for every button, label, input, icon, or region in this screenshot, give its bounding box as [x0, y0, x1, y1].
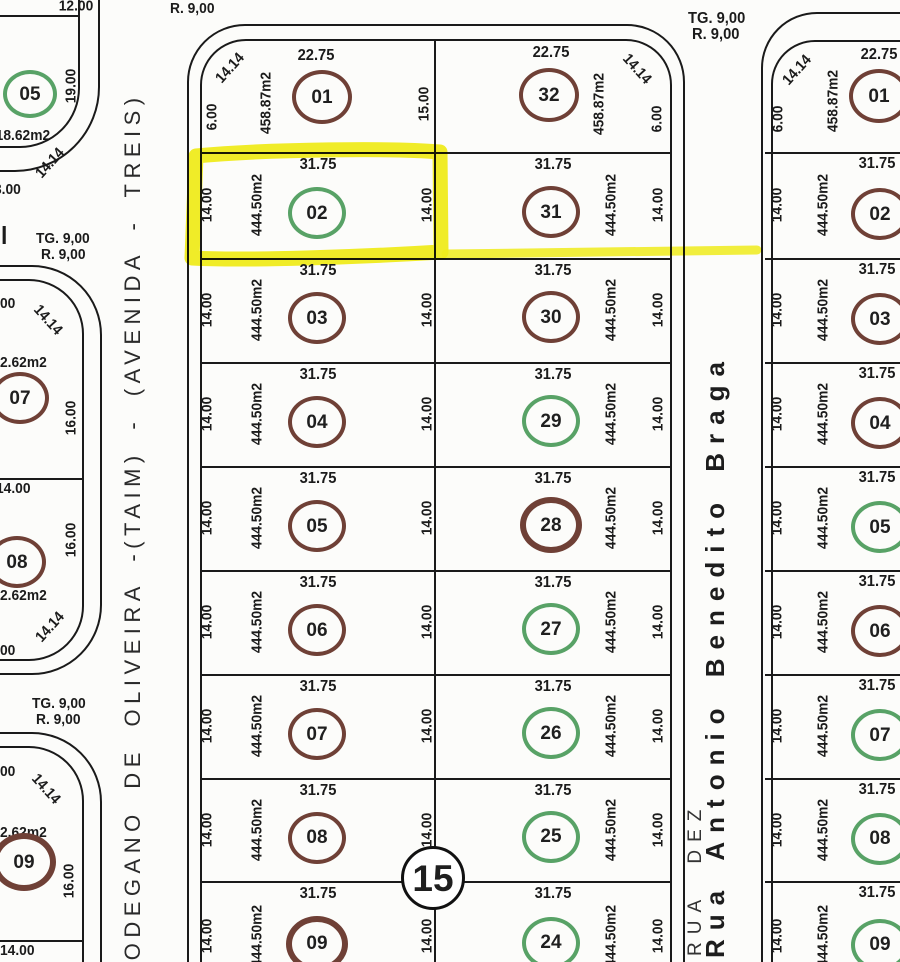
lot-top-dim: 31.75	[300, 679, 337, 695]
lot-number-circle: 31	[522, 186, 580, 238]
boundary-line	[765, 258, 900, 260]
lot-side-dim: 14.00	[200, 605, 215, 640]
lot-top-dim: 22.75	[533, 45, 570, 61]
lot-top-dim: 22.75	[298, 48, 335, 64]
lot-top-dim: 31.75	[300, 471, 337, 487]
lot-side-dim: 6.00	[205, 104, 220, 131]
lot-bottom-dim: 3.00	[0, 182, 21, 197]
lot-side-dim: 14.00	[651, 501, 666, 536]
lot-side-dim: 14.00	[200, 918, 215, 953]
lot-area: 444.50m2	[250, 591, 265, 653]
lot-area: 444.50m2	[816, 904, 831, 962]
lot-side-dim: 14.00	[420, 918, 435, 953]
lot-top-dim: 31.75	[859, 678, 896, 694]
lot-top-dim: 31.75	[300, 886, 337, 902]
lot-area: 444.50m2	[816, 487, 831, 549]
lot-top-dim: 31.75	[859, 262, 896, 278]
lot-side-dim: 14.00	[770, 501, 785, 536]
lot-number-circle: 26	[522, 707, 580, 759]
lot-area: 444.50m2	[816, 174, 831, 236]
lot-divider-dim: 14.00	[0, 481, 31, 496]
lot-number-circle: 05	[288, 500, 346, 552]
street-setback-label-top-right-tg: TG. 9,00	[688, 11, 745, 27]
lot-number-circle: 03	[288, 292, 346, 344]
lot-side-dim: 14.00	[770, 812, 785, 847]
lot-top-dim: 12.00	[59, 0, 94, 14]
lot-number-circle: 30	[522, 291, 580, 343]
lot-top-dim: 31.75	[859, 366, 896, 382]
lot-side-dim: 16.00	[64, 523, 79, 558]
lot-side-dim: 14.00	[200, 293, 215, 328]
lot-number-circle: 01	[292, 70, 352, 124]
block-number-badge: 15	[401, 846, 465, 910]
lot-area: 444.50m2	[250, 798, 265, 860]
lot-side-dim: 14.00	[770, 605, 785, 640]
lot-side-dim: 14.00	[651, 709, 666, 744]
lot-side-dim: 16.00	[62, 864, 77, 899]
lot-number-circle: 08	[851, 813, 900, 865]
lot-top-dim: 31.75	[535, 157, 572, 173]
lot-side-dim: 19.00	[64, 69, 79, 104]
lot-side-dim: 14.00	[770, 397, 785, 432]
lot-area: 2.62m2	[0, 355, 47, 370]
lot-number-circle: 28	[520, 497, 582, 553]
lot-area: 444.50m2	[604, 279, 619, 341]
lot-number-circle: 04	[288, 396, 346, 448]
lot-bottom-dim: 14.00	[0, 943, 35, 958]
lot-area: 444.50m2	[604, 904, 619, 962]
lot-number-circle: 24	[522, 917, 580, 962]
lot-top-dim: 31.75	[535, 575, 572, 591]
lot-side-dim: 14.00	[770, 188, 785, 223]
boundary-line	[765, 152, 900, 154]
street-setback-label-mid-left-tg: TG. 9,00	[36, 231, 90, 246]
lot-top-dim: 31.75	[300, 157, 337, 173]
lot-area: 444.50m2	[604, 591, 619, 653]
lot-number-circle: 27	[522, 603, 580, 655]
lot-side-dim: 14.00	[420, 605, 435, 640]
lot-side-dim: 14.00	[420, 501, 435, 536]
lot-area: 444.50m2	[250, 904, 265, 962]
lot-side-dim: 14.00	[420, 188, 435, 223]
lot-number-circle: 25	[522, 811, 580, 863]
lot-area: 444.50m2	[604, 798, 619, 860]
main-block-edge	[200, 39, 672, 962]
lot-top-dim: 31.75	[535, 471, 572, 487]
boundary-line	[765, 881, 900, 883]
lot-side-dim: 14.00	[651, 918, 666, 953]
lot-area: 444.50m2	[816, 695, 831, 757]
lot-area: 444.50m2	[604, 695, 619, 757]
lot-side-dim: 14.00	[420, 293, 435, 328]
lot-area: 444.50m2	[250, 279, 265, 341]
lot-side-dim: 14.00	[420, 812, 435, 847]
street-setback-label-bottom-left-tg: TG. 9,00	[32, 696, 86, 711]
lot-number-circle: 03	[851, 293, 900, 345]
street-setback-label-top-left: R. 9,00	[170, 1, 215, 16]
lot-side-dim: 14.00	[420, 397, 435, 432]
clipped-street-letter: l	[1, 224, 7, 249]
lot-top-dim: 31.75	[859, 574, 896, 590]
lot-top-dim: 31.75	[535, 367, 572, 383]
lot-top-dim: 31.75	[859, 156, 896, 172]
boundary-line	[765, 778, 900, 780]
lot-number-circle: 02	[851, 188, 900, 240]
lot-area: 2.62m2	[0, 588, 47, 603]
lot-area: 444.50m2	[250, 383, 265, 445]
lot-number-circle: 06	[851, 605, 900, 657]
lot-area: 444.50m2	[250, 695, 265, 757]
lot-top-dim: 31.75	[300, 575, 337, 591]
lot-side-dim: 14.00	[651, 605, 666, 640]
plat-map: R. 9,00 TG. 9,00 R. 9,00 TG. 9,00 R. 9,0…	[0, 0, 900, 962]
lot-side-dim: 6.00	[650, 106, 665, 133]
street-setback-label-mid-left-r: R. 9,00	[41, 247, 86, 262]
lot-top-dim: 31.75	[859, 885, 896, 901]
lot-number-circle: 01	[849, 69, 900, 123]
lot-area: 458.87m2	[259, 72, 274, 134]
lot-number-circle: 04	[851, 397, 900, 449]
boundary-line	[765, 466, 900, 468]
boundary-line	[765, 674, 900, 676]
lot-side-dim: 14.00	[770, 293, 785, 328]
lot-side-dim: 16.00	[64, 401, 79, 436]
lot-area: 444.50m2	[604, 383, 619, 445]
lot-side-dim: 14.00	[651, 812, 666, 847]
street-setback-label-bottom-left-r: R. 9,00	[36, 712, 81, 727]
lot-side-dim: 14.00	[200, 501, 215, 536]
lot-number-circle: 05	[851, 501, 900, 553]
lot-side-dim: 14.00	[770, 918, 785, 953]
lot-top-dim: 31.75	[300, 263, 337, 279]
lot-top-dim: 00	[0, 296, 15, 311]
lot-number-circle: 07	[851, 709, 900, 761]
lot-side-dim: 14.00	[420, 709, 435, 744]
lot-number-circle: 05	[3, 70, 57, 118]
lot-area: 458.87m2	[592, 73, 607, 135]
lot-bottom-dim: 00	[0, 643, 15, 658]
lot-top-dim: 31.75	[535, 263, 572, 279]
boundary-line	[765, 362, 900, 364]
lot-top-dim: 31.75	[859, 782, 896, 798]
lot-number-circle: 32	[519, 68, 579, 122]
boundary-line	[765, 570, 900, 572]
lot-side-dim: 6.00	[771, 106, 786, 133]
lot-side-dim: 14.00	[770, 709, 785, 744]
lot-area: 444.50m2	[604, 174, 619, 236]
lot-top-dim: 31.75	[859, 470, 896, 486]
street-name-avenida-treis: LODEGANO DE OLIVEIRA -(TAIM) - (AVENIDA …	[122, 92, 144, 962]
lot-side-dim: 14.00	[200, 709, 215, 744]
lot-top-dim: 31.75	[535, 783, 572, 799]
lot-top-dim: 31.75	[535, 679, 572, 695]
lot-top-dim: 22.75	[861, 47, 898, 63]
boundary-line	[0, 15, 78, 17]
lot-side-dim: 15.00	[417, 87, 432, 122]
lot-top-dim: 00	[0, 764, 15, 779]
lot-top-dim: 31.75	[300, 783, 337, 799]
lot-number-circle: 02	[288, 187, 346, 239]
lot-number-circle: 06	[288, 604, 346, 656]
lot-number-circle: 08	[288, 812, 346, 864]
lot-area: 444.50m2	[250, 174, 265, 236]
lot-area: 444.50m2	[816, 383, 831, 445]
lot-area: 444.50m2	[250, 487, 265, 549]
street-name-rua-dez: RUA DEZ	[686, 802, 705, 956]
lot-side-dim: 14.00	[651, 293, 666, 328]
lot-side-dim: 14.00	[200, 188, 215, 223]
lot-top-dim: 31.75	[300, 367, 337, 383]
lot-side-dim: 14.00	[200, 397, 215, 432]
lot-side-dim: 14.00	[651, 188, 666, 223]
lot-area: 518.62m2	[0, 128, 50, 143]
lot-top-dim: 31.75	[535, 886, 572, 902]
lot-number-circle: 07	[288, 708, 346, 760]
lot-area: 458.87m2	[826, 70, 841, 132]
lot-area: 444.50m2	[604, 487, 619, 549]
lot-number-circle: 29	[522, 395, 580, 447]
street-setback-label-top-right-r: R. 9,00	[692, 27, 739, 43]
lot-area: 444.50m2	[816, 798, 831, 860]
lot-side-dim: 14.00	[200, 812, 215, 847]
lot-area: 444.50m2	[816, 279, 831, 341]
lot-area: 444.50m2	[816, 591, 831, 653]
lot-side-dim: 14.00	[651, 397, 666, 432]
